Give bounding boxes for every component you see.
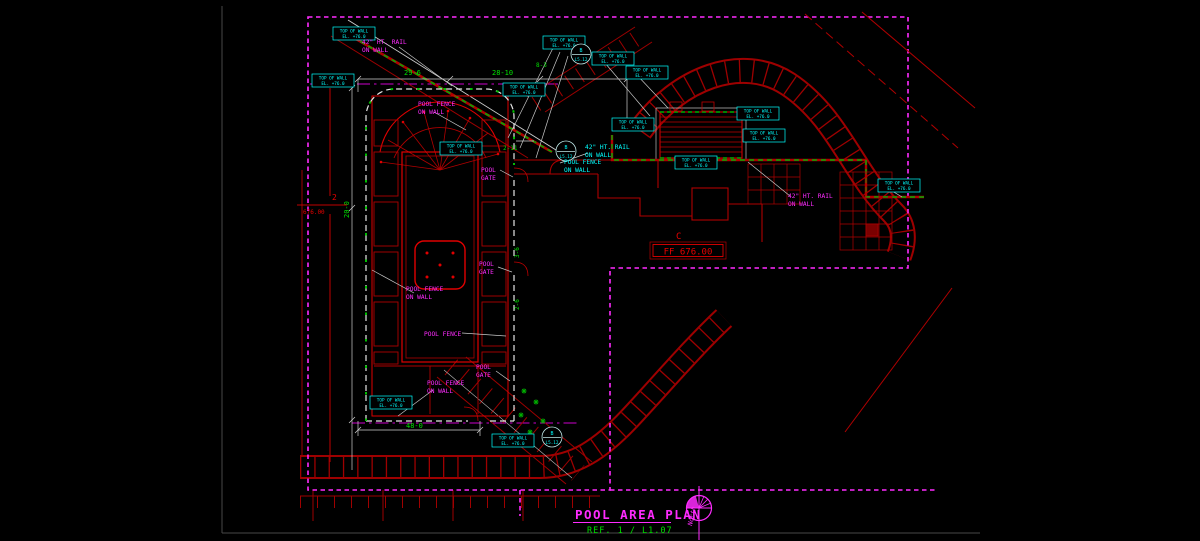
ff-elevation-marker: C FF 676.00 bbox=[650, 232, 726, 259]
top-of-wall-callouts: TOP OF WALLEL. +76.0 TOP OF WALLEL. +76.… bbox=[312, 27, 920, 447]
callout-line1: TOP OF WALL bbox=[682, 158, 711, 164]
svg-text:GATE: GATE bbox=[481, 175, 496, 182]
callout-line1: TOP OF WALL bbox=[619, 120, 648, 126]
svg-text:GATE: GATE bbox=[476, 372, 491, 379]
callout-line2: EL. +76.0 bbox=[752, 136, 776, 142]
rail-label-center: 42" HT. RAIL ON WALL bbox=[585, 144, 630, 159]
svg-text:POOL FENCE: POOL FENCE bbox=[418, 101, 456, 108]
callout-line1: TOP OF WALL bbox=[499, 436, 528, 442]
svg-text:GATE: GATE bbox=[479, 269, 494, 276]
callout-line2: EL. +76.0 bbox=[601, 59, 625, 65]
svg-text:POOL FENCE: POOL FENCE bbox=[427, 380, 465, 387]
svg-text:POOL: POOL bbox=[479, 261, 494, 268]
callout-line2: EL. +76.0 bbox=[887, 186, 911, 192]
callout-line2: EL. +76.0 bbox=[621, 125, 645, 131]
dim-gate-offset: 2-11 bbox=[503, 145, 518, 152]
callout-line1: TOP OF WALL bbox=[633, 68, 662, 74]
callout-line1: TOP OF WALL bbox=[599, 54, 628, 60]
pool-gate-label-2: POOL GATE bbox=[479, 261, 494, 276]
callout-line1: TOP OF WALL bbox=[750, 131, 779, 137]
dim-left-height: 20-0 bbox=[343, 201, 351, 218]
callout-line2: EL. +76.0 bbox=[379, 403, 403, 409]
callout-line1: TOP OF WALL bbox=[550, 38, 579, 44]
svg-text:42" HT. RAIL: 42" HT. RAIL bbox=[362, 39, 407, 46]
callout-line1: TOP OF WALL bbox=[744, 109, 773, 115]
callout-line1: TOP OF WALL bbox=[340, 29, 369, 35]
pool-gate-label-1: POOL GATE bbox=[481, 167, 496, 182]
pool-fence-label: POOL FENCE bbox=[424, 331, 462, 338]
callout-line2: EL. +76.0 bbox=[321, 81, 345, 87]
alignment-dashdot-lines bbox=[310, 84, 578, 423]
callout-line1: TOP OF WALL bbox=[377, 398, 406, 404]
svg-text:42" HT. RAIL: 42" HT. RAIL bbox=[788, 193, 833, 200]
callout-line2: EL. +76.0 bbox=[501, 441, 525, 447]
svg-text:POOL: POOL bbox=[481, 167, 496, 174]
level-marker: 2 676.00 bbox=[297, 193, 347, 216]
pool-area-plan-drawing: 29-6 28-10 8-3 2-11 48-0 20-0 3-6 2-6 TO… bbox=[0, 0, 1200, 541]
pool-fence-wall-label-mid: POOL FENCE ON WALL bbox=[406, 286, 444, 301]
svg-text:42" HT. RAIL: 42" HT. RAIL bbox=[585, 144, 630, 151]
dim-top-right: 28-10 bbox=[492, 69, 513, 77]
callout-line2: EL. +76.0 bbox=[512, 90, 536, 96]
callout-line2: EL. +76.0 bbox=[449, 149, 473, 155]
svg-text:POOL FENCE: POOL FENCE bbox=[564, 159, 602, 166]
title-block: POOL AREA PLAN REF. 1 / L1.07 North bbox=[573, 486, 712, 540]
page-title: POOL AREA PLAN bbox=[575, 507, 701, 522]
callout-line1: TOP OF WALL bbox=[510, 85, 539, 91]
callout-line1: TOP OF WALL bbox=[885, 181, 914, 187]
dim-right-a: 3-6 bbox=[514, 247, 521, 258]
svg-text:ON WALL: ON WALL bbox=[406, 294, 432, 301]
sheet-reference: REF. 1 / L1.07 bbox=[587, 526, 673, 536]
svg-text:ON WALL: ON WALL bbox=[418, 109, 444, 116]
ff-value: FF 676.00 bbox=[664, 248, 713, 258]
pool-fence-wall-label-bottom: POOL FENCE ON WALL bbox=[427, 380, 465, 395]
svg-text:ON WALL: ON WALL bbox=[362, 47, 388, 54]
bubble-letter: B bbox=[550, 431, 553, 437]
callout-line2: EL. +76.0 bbox=[635, 73, 659, 79]
callout-line2: EL. +76.0 bbox=[684, 163, 708, 169]
dim-right-b: 2-6 bbox=[514, 299, 521, 310]
ff-letter: C bbox=[676, 232, 681, 242]
detail-bubbles: BL5.12 BL5.12 BL5.12 bbox=[542, 44, 591, 447]
north-arrow-icon: North bbox=[686, 486, 712, 540]
svg-text:ON WALL: ON WALL bbox=[564, 167, 590, 174]
callout-line2: EL. +76.0 bbox=[746, 114, 770, 120]
callout-line1: TOP OF WALL bbox=[447, 144, 476, 150]
rail-label-right: 42" HT. RAIL ON WALL bbox=[788, 193, 833, 208]
level-value: 676.00 bbox=[303, 209, 325, 216]
dim-top-left: 29-6 bbox=[404, 69, 421, 77]
rail-label-top-left: 42" HT. RAIL ON WALL bbox=[362, 39, 407, 54]
callout-line1: TOP OF WALL bbox=[319, 76, 348, 82]
pool-fence-wall-label-center: POOL FENCE ON WALL bbox=[564, 159, 602, 174]
dim-bottom-width: 48-0 bbox=[406, 422, 423, 430]
dim-upper-small: 8-3 bbox=[536, 62, 547, 69]
pool-gate-label-3: POOL GATE bbox=[476, 364, 491, 379]
bubble-letter: B bbox=[579, 48, 582, 54]
bubble-sheet: L5.12 bbox=[575, 57, 588, 63]
bubble-letter: B bbox=[564, 145, 567, 151]
svg-text:ON WALL: ON WALL bbox=[585, 152, 611, 159]
cad-viewport: 29-6 28-10 8-3 2-11 48-0 20-0 3-6 2-6 TO… bbox=[0, 0, 1200, 541]
pool-fence-wall-label-top: POOL FENCE ON WALL bbox=[418, 101, 456, 116]
svg-text:ON WALL: ON WALL bbox=[427, 388, 453, 395]
pool-fence-green-marks bbox=[366, 89, 514, 421]
bubble-sheet: L5.12 bbox=[546, 440, 559, 446]
pool-fence-dashed bbox=[366, 89, 514, 421]
level-number: 2 bbox=[332, 193, 337, 202]
svg-text:POOL FENCE: POOL FENCE bbox=[406, 286, 444, 293]
svg-text:ON WALL: ON WALL bbox=[788, 201, 814, 208]
svg-text:POOL: POOL bbox=[476, 364, 491, 371]
